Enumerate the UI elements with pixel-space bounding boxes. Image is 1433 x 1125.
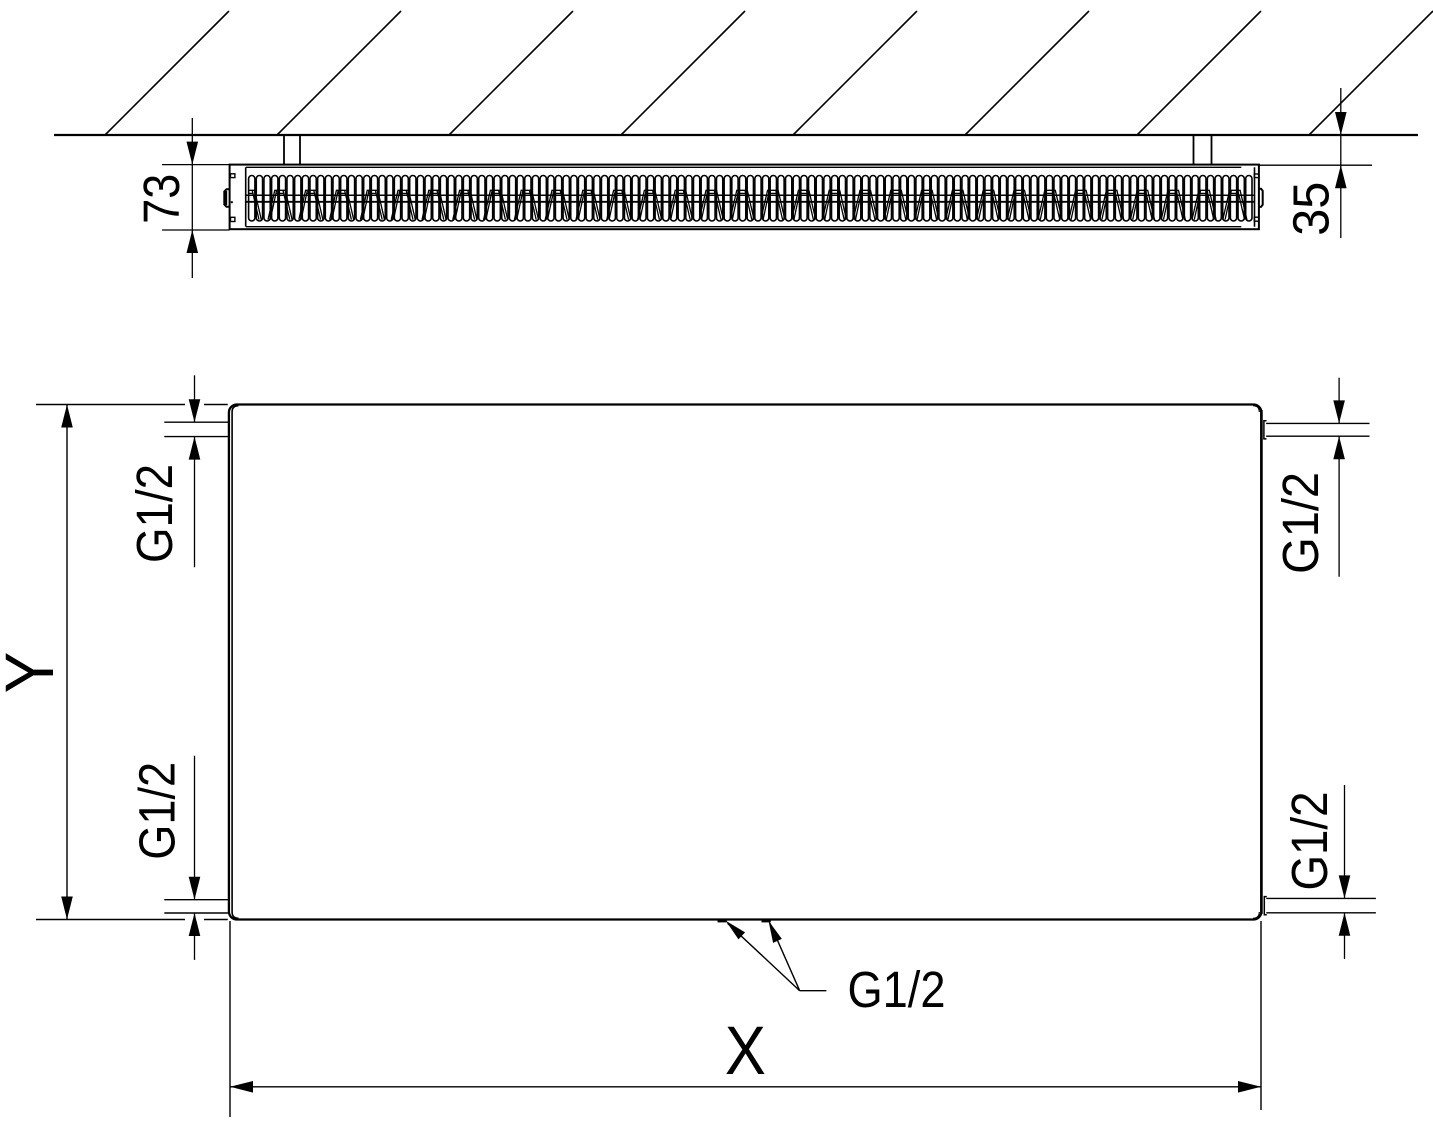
svg-text:G1/2: G1/2 xyxy=(1272,472,1329,574)
svg-text:Y: Y xyxy=(0,652,68,694)
svg-text:G1/2: G1/2 xyxy=(1281,792,1338,891)
svg-text:G1/2: G1/2 xyxy=(128,762,185,860)
svg-text:73: 73 xyxy=(133,174,190,224)
svg-text:35: 35 xyxy=(1282,182,1339,236)
svg-text:X: X xyxy=(725,1012,766,1089)
svg-text:G1/2: G1/2 xyxy=(126,464,183,563)
svg-text:G1/2: G1/2 xyxy=(848,961,946,1018)
